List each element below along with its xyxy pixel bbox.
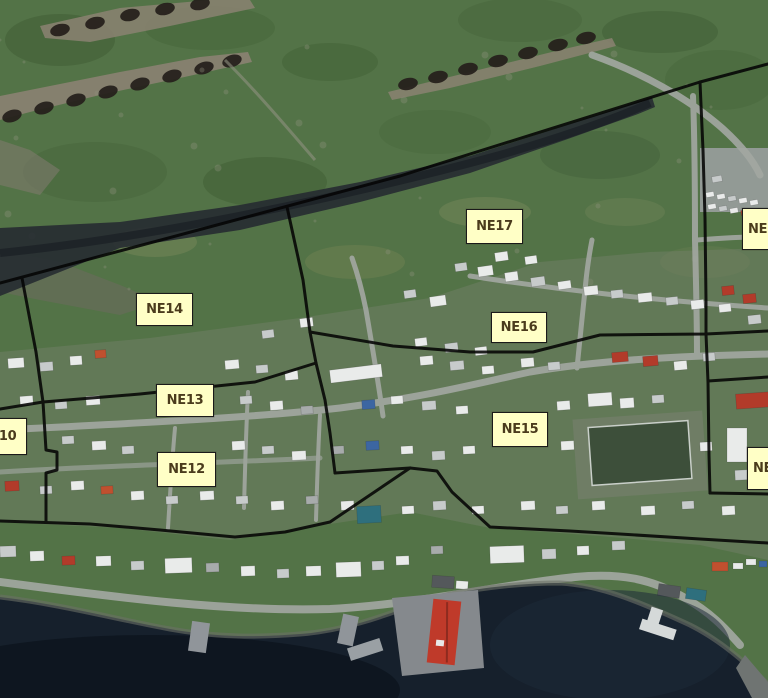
- aerial-map-image: NE17NE14NE16NE13NE15NE12NE10NENE: [0, 0, 768, 698]
- map-artwork: [0, 0, 768, 698]
- sports-field: [573, 411, 708, 500]
